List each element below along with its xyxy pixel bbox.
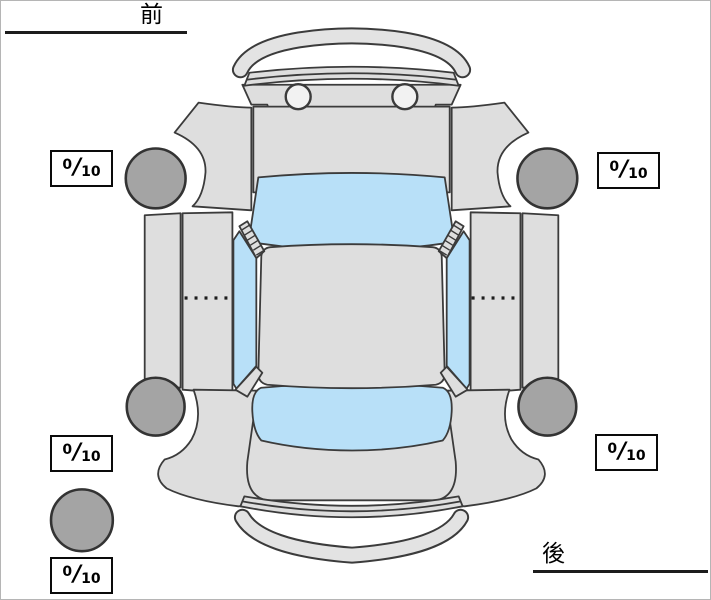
score-value: 0: [62, 564, 72, 580]
score-max: 10: [81, 164, 100, 180]
score-slash: /: [73, 562, 81, 587]
tire-rear-right: [518, 378, 576, 436]
fender-front-right: [452, 103, 529, 211]
score-slash: /: [73, 155, 81, 180]
rear-window: [252, 384, 452, 451]
tire-front-left: [126, 149, 186, 209]
score-value: 0: [62, 442, 72, 458]
spare-tire: [51, 489, 113, 551]
score-max: 10: [628, 166, 647, 182]
fender-front-left: [175, 103, 252, 211]
score-box-rear-right: 0 / 10: [595, 434, 658, 471]
roof: [258, 244, 444, 388]
side-window-left: [233, 231, 256, 388]
score-box-front-right: 0 / 10: [597, 152, 660, 189]
headlight-right-icon: [392, 84, 417, 109]
score-box-front-left: 0 / 10: [50, 150, 113, 187]
score-max: 10: [81, 449, 100, 465]
score-box-rear-left: 0 / 10: [50, 435, 113, 472]
side-window-right: [447, 231, 470, 388]
windshield: [250, 173, 453, 250]
door-panel-outer-right: [522, 213, 558, 387]
score-slash: /: [618, 439, 626, 464]
tire-front-right: [517, 149, 577, 209]
headlight-left-icon: [286, 84, 311, 109]
score-slash: /: [73, 440, 81, 465]
score-max: 10: [81, 571, 100, 587]
tire-rear-left: [127, 378, 185, 436]
door-panel-outer-left: [145, 213, 181, 387]
score-max: 10: [626, 448, 645, 464]
score-value: 0: [609, 159, 619, 175]
door-panel-inner-left: [183, 212, 233, 393]
score-value: 0: [607, 441, 617, 457]
score-value: 0: [62, 157, 72, 173]
car-top-view-svg: [1, 1, 710, 599]
score-slash: /: [620, 157, 628, 182]
door-panel-inner-right: [471, 212, 521, 393]
score-box-spare: 0 / 10: [50, 557, 113, 594]
car-condition-diagram: 前 後: [0, 0, 711, 600]
